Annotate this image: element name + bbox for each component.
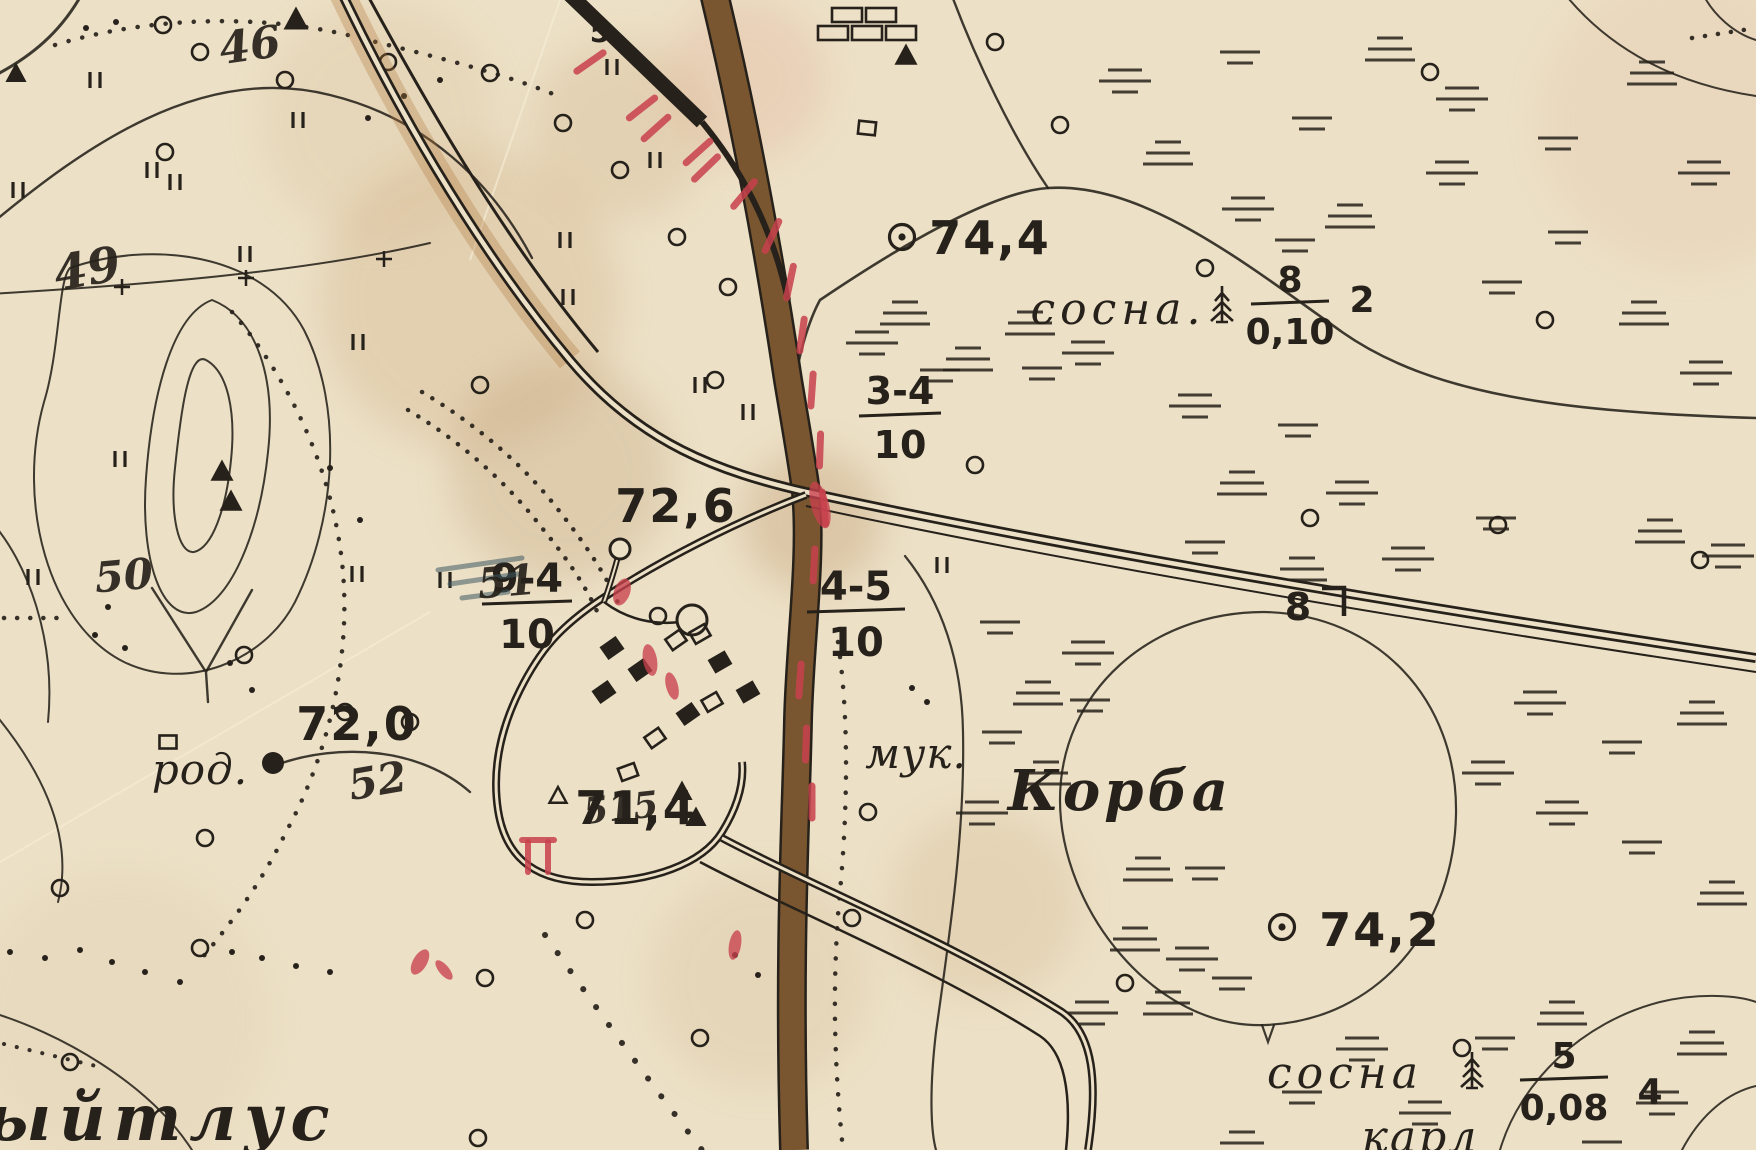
label-spring-label: род. xyxy=(152,745,248,794)
label-elevation-72-0: 72,0 xyxy=(296,697,418,751)
trail-dot xyxy=(327,465,333,471)
label-forest-label-pine-north: сосна. xyxy=(1031,284,1206,335)
fraction-denominator: 10 xyxy=(874,423,927,467)
trail-dot xyxy=(327,969,333,975)
trail-dot xyxy=(249,687,255,693)
road-turnaround xyxy=(610,539,630,559)
red-handwritten-number: 52 xyxy=(344,752,410,810)
trail-dot xyxy=(142,969,148,975)
topographic-map-scan: 80,103-4109-4104-51050,08574,4сосна.272,… xyxy=(0,0,1756,1150)
trail-dot xyxy=(259,955,265,961)
fraction-numerator: 5 xyxy=(1551,1036,1576,1077)
red-tick-mark xyxy=(800,319,804,351)
trail-dot xyxy=(113,19,119,25)
label-forest-class-2: 2 xyxy=(1349,280,1374,321)
trail-dot xyxy=(42,955,48,961)
red-tick-mark xyxy=(799,664,801,696)
trail-dot xyxy=(357,517,363,523)
trail-dot xyxy=(755,972,761,978)
trail-dot xyxy=(83,25,89,31)
label-elevation-74-4: 74,4 xyxy=(929,211,1051,265)
trail-dot xyxy=(293,963,299,969)
trail-dot xyxy=(105,604,111,610)
trail-dot xyxy=(7,949,13,955)
red-handwritten-number: 50 xyxy=(92,549,155,603)
fraction-denominator: 10 xyxy=(828,620,884,666)
fraction-denominator: 0,10 xyxy=(1246,312,1335,353)
red-handwritten-number: 51 xyxy=(475,555,538,609)
fraction-denominator: 10 xyxy=(499,612,555,658)
red-handwritten-number: 46 xyxy=(216,16,284,75)
trail-dot xyxy=(227,660,233,666)
spot-elevation-dot xyxy=(1278,923,1285,930)
red-tick-mark xyxy=(811,374,813,406)
spring-point xyxy=(262,752,284,774)
label-elevation-72-6: 72,6 xyxy=(615,479,737,533)
red-tick-mark xyxy=(819,434,820,466)
red-tick-mark xyxy=(813,549,815,581)
fraction-numerator: 8 xyxy=(1277,260,1302,301)
trail-dot xyxy=(229,949,235,955)
trail-dot xyxy=(437,77,443,83)
trail-dot xyxy=(92,632,98,638)
label-elevation-74-2: 74,2 xyxy=(1319,903,1441,957)
trail-dot xyxy=(365,115,371,121)
trail-dot xyxy=(909,685,915,691)
spot-elevation-dot xyxy=(898,233,905,240)
label-label-karl-partial: карл xyxy=(1362,1112,1479,1150)
paper-stain xyxy=(650,870,870,1090)
red-handwritten-number: 49 xyxy=(49,236,125,303)
label-village-name-korba: Корба xyxy=(1006,758,1232,824)
label-road-width-8: 8 xyxy=(1285,585,1311,629)
trail-dot xyxy=(109,959,115,965)
label-spot-5: 5 xyxy=(590,15,611,50)
red-tick-mark xyxy=(805,728,806,760)
trail-dot xyxy=(177,979,183,985)
label-forest-label-pine-south: сосна xyxy=(1267,1048,1423,1099)
label-forest-class-4: 4 xyxy=(1637,1072,1662,1113)
label-settlement-name-partial: ыйтлус xyxy=(0,1081,337,1150)
map-canvas: 80,103-4109-4104-51050,08574,4сосна.272,… xyxy=(0,0,1756,1150)
trail-dot xyxy=(77,947,83,953)
fraction-numerator: 4-5 xyxy=(820,564,892,610)
trail-dot xyxy=(924,699,930,705)
fraction-numerator: 3-4 xyxy=(866,369,935,413)
fraction-denominator: 0,08 xyxy=(1520,1088,1609,1129)
trail-dot xyxy=(122,645,128,651)
label-mill-label: мук. xyxy=(865,729,967,778)
red-handwritten-number: 515 xyxy=(581,783,660,833)
